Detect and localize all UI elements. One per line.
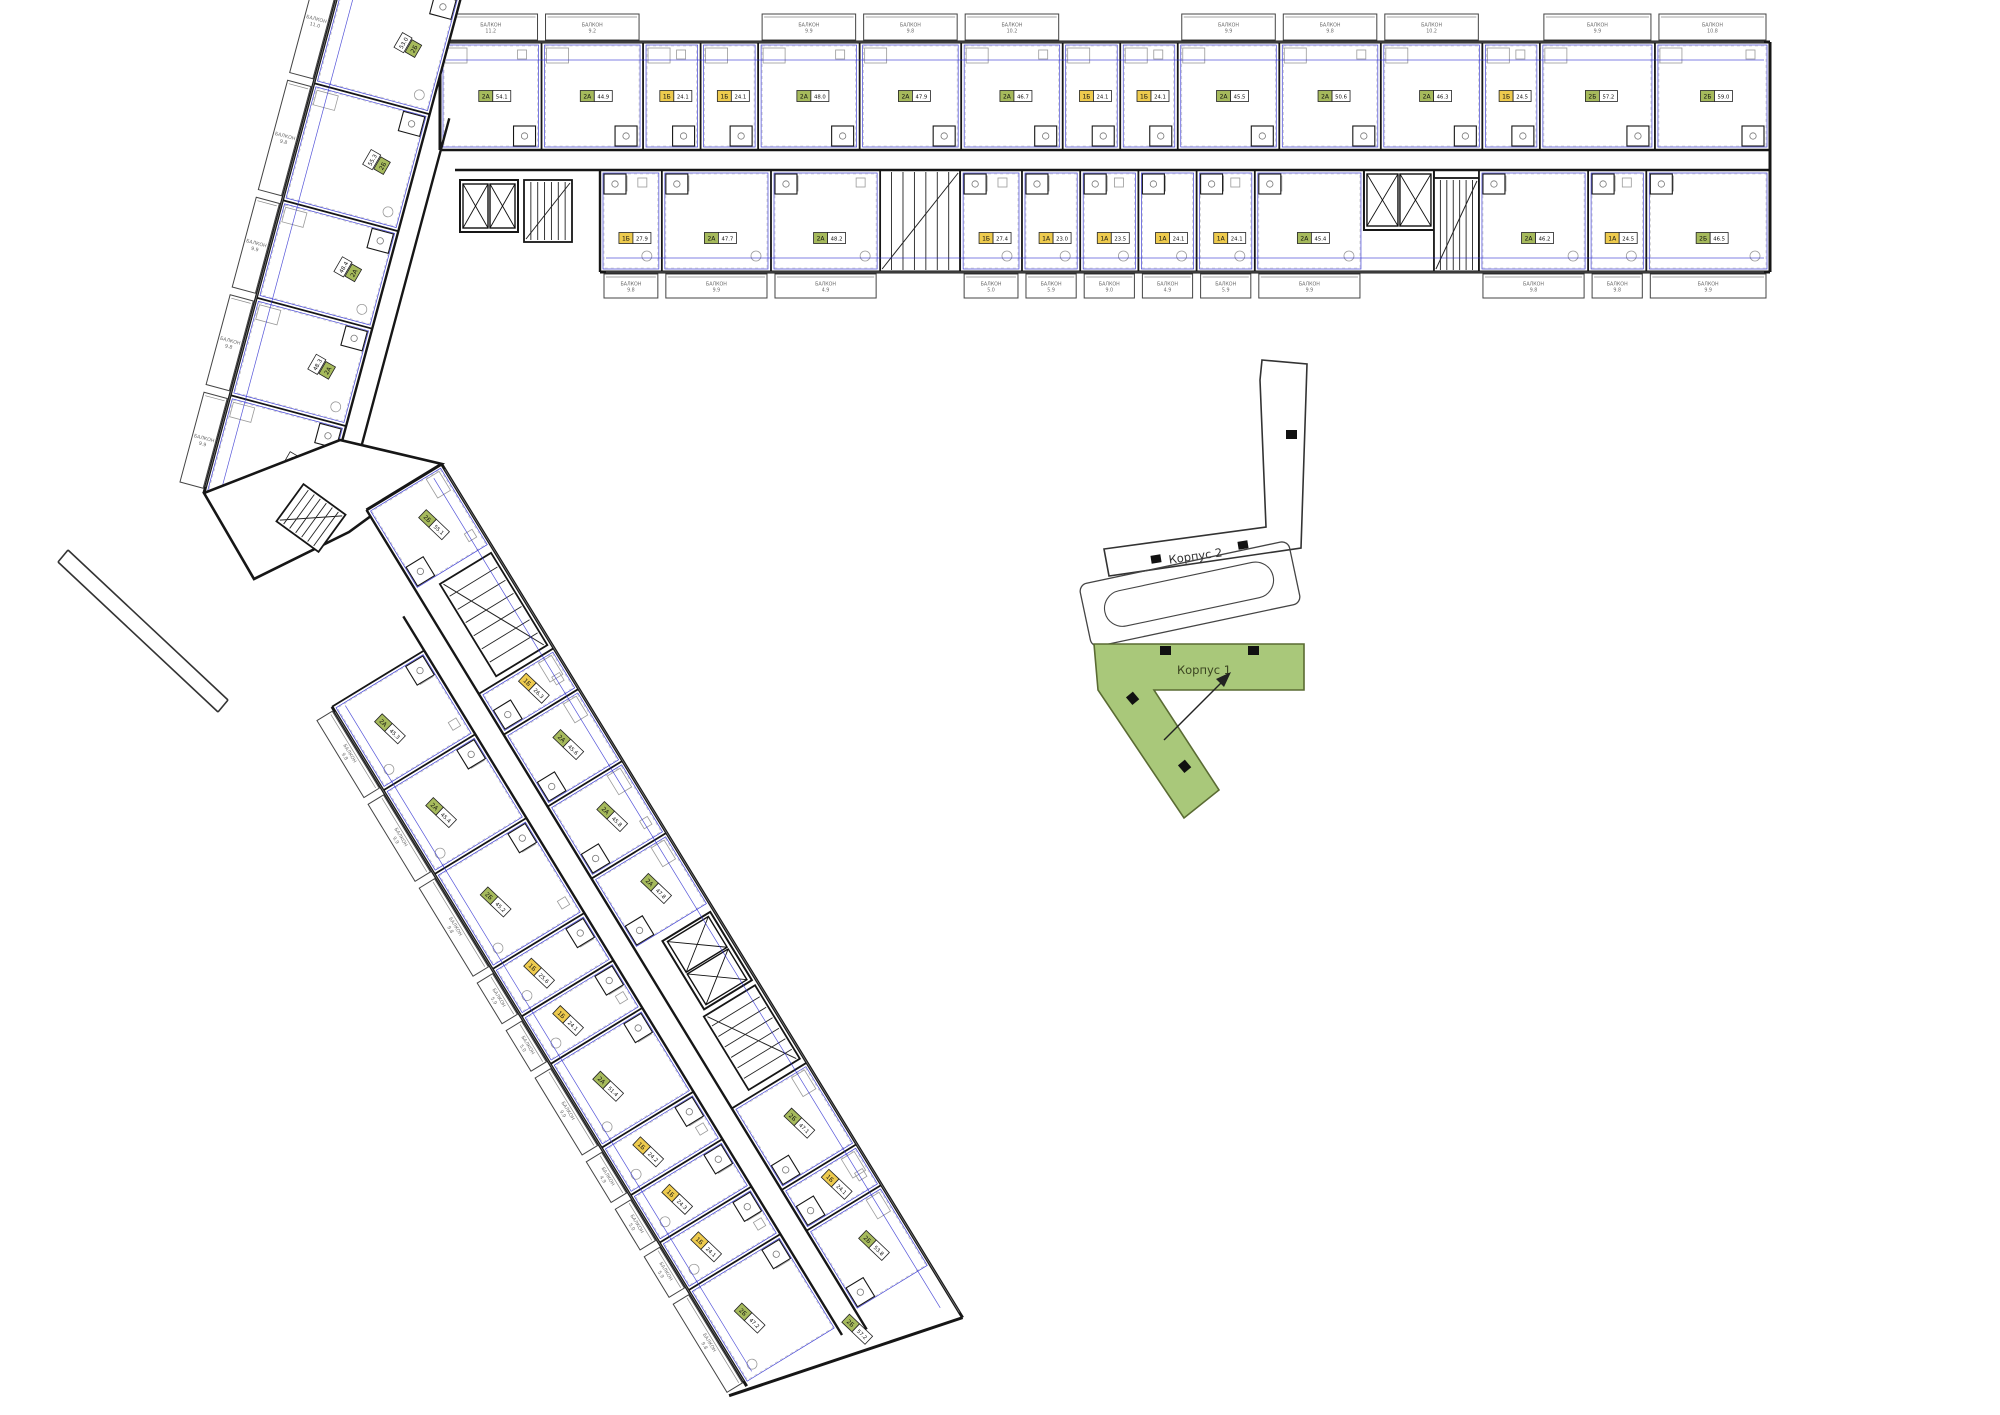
bathroom [1084,174,1106,194]
unit-type-text: 2А [1300,235,1309,242]
balcony-area: 9.8 [1326,29,1334,35]
bathroom [1259,174,1281,194]
balcony-label: БАЛКОН [1099,282,1120,288]
balcony-area: 5.9 [1047,288,1055,294]
keyplan-korpus2-shape[interactable] [1104,360,1307,576]
keyplan-korpus1-label: Корпус 1 [1177,663,1231,677]
apartment-unit-2А[interactable]: 2А47.9БАЛКОН9.8 [860,14,962,150]
unit-badge: 2А47.7 [704,233,736,244]
apartment-unit-2А[interactable]: 2А48.0БАЛКОН9.9 [758,14,860,150]
balcony-area: 9.8 [1613,288,1621,294]
bathroom [775,174,797,194]
unit-area-text: 24.1 [1154,94,1166,100]
balcony-area: 10.2 [1007,29,1018,35]
balcony-area: 9.0 [1105,288,1113,294]
apartment-unit-2А[interactable]: 2А44.9БАЛКОН9.2 [542,14,644,150]
apartment-unit-2А[interactable]: 2А46.3БАЛКОН10.2 [1381,14,1483,150]
bathroom [1650,174,1672,194]
balcony-label: БАЛКОН [1587,23,1608,29]
apartment-unit-1А[interactable]: 1А24.1БАЛКОН4.9 [1138,170,1196,298]
apartment-unit-2А[interactable]: 2А50.6БАЛКОН9.8 [1279,14,1381,150]
balcony-label: БАЛКОН [900,23,921,29]
bathroom [964,174,986,194]
apartment-unit-1А[interactable]: 1А24.5БАЛКОН9.8 [1588,170,1646,298]
unit-area-text: 24.1 [1173,236,1185,242]
apartment-unit-1Б[interactable]: 1Б24.1 [643,42,701,150]
bathroom [1742,126,1764,146]
unit-type-text: 2А [817,235,826,242]
unit-area-text: 24.1 [1097,94,1109,100]
unit-type-text: 1А [1217,235,1226,242]
apartment-unit-2А[interactable]: 2А46.2БАЛКОН9.8 [1479,170,1588,298]
unit-badge: 2А47.9 [898,91,930,102]
bathroom [673,126,695,146]
apartment-unit-1Б[interactable]: 1Б24.1 [701,42,759,150]
apartment-unit-2Б[interactable]: 2Б46.5БАЛКОН9.9 [1646,170,1770,298]
stair-core [524,180,572,242]
unit-badge: 2А54.1 [479,91,511,102]
bathroom [604,174,626,194]
balcony-area: 9.2 [588,29,596,35]
bathroom [1026,174,1048,194]
bathroom [1454,126,1476,146]
unit-badge: 1Б24.1 [717,91,749,102]
balcony-label: БАЛКОН [480,23,501,29]
apartment-unit-2А[interactable]: 2А47.7БАЛКОН9.9 [662,170,771,298]
balcony-area: 9.9 [1225,29,1233,35]
unit-type-text: 2Б [1588,93,1596,100]
bathroom [1353,126,1375,146]
unit-badge: 2А45.5 [1217,91,1249,102]
balcony-area: 5.0 [987,288,995,294]
floor-plan-page: { "labels": { "korpus1": "Корпус 1", "ko… [0,0,2000,1415]
bathroom [1201,174,1223,194]
elevator-core [1364,170,1434,230]
stair-core [880,170,960,272]
unit-type-text: 1А [1608,235,1617,242]
unit-area-text: 46.5 [1713,236,1725,242]
unit-badge: 2А45.4 [1297,233,1329,244]
balcony-label: БАЛКОН [1001,23,1022,29]
balcony-area: 10.8 [1707,29,1718,35]
unit-area-text: 23.5 [1114,236,1126,242]
unit-type-text: 1А [1042,235,1051,242]
unit-type-text: 2А [707,235,716,242]
balcony-area: 10.2 [1426,29,1437,35]
apartment-unit-1Б[interactable]: 1Б24.1 [1120,42,1178,150]
unit-badge: 1Б27.4 [979,233,1011,244]
unit-type-text: 1Б [1082,93,1090,100]
unit-type-text: 1Б [622,235,630,242]
apartment-unit-1А[interactable]: 1А24.1БАЛКОН5.9 [1197,170,1255,298]
unit-area-text: 24.5 [1622,236,1634,242]
unit-badge: 2Б59.0 [1700,91,1732,102]
balcony-label: БАЛКОН [620,282,641,288]
unit-area-text: 46.7 [1017,94,1029,100]
unit-badge: 2А48.2 [814,233,846,244]
balcony-area: 9.8 [907,29,915,35]
unit-area-text: 57.2 [1603,94,1615,100]
unit-type-text: 1Б [1502,93,1510,100]
unit-type-text: 1А [1159,235,1168,242]
apartment-unit-1А[interactable]: 1А23.0БАЛКОН5.9 [1022,170,1080,298]
balcony-label: БАЛКОН [582,23,603,29]
lower-right-wing: 2Б55.11Б26.32А45.62А45.82А47.82Б47.11Б24… [237,464,963,1415]
balcony-label: БАЛКОН [1299,282,1320,288]
apartment-unit-2А[interactable]: 2А46.7БАЛКОН10.2 [961,14,1063,150]
unit-area-text: 24.1 [677,94,689,100]
apartment-unit-1Б[interactable]: 1Б24.5 [1482,42,1540,150]
balcony-label: БАЛКОН [1523,282,1544,288]
unit-badge: 2А46.3 [1420,91,1452,102]
balcony-label: БАЛКОН [1702,23,1723,29]
balcony-label: БАЛКОН [706,282,727,288]
balcony-label: БАЛКОН [1041,282,1062,288]
window-band [335,712,743,1381]
unit-badge: 2А48.0 [797,91,829,102]
unit-type-text: 2А [1423,93,1432,100]
unit-badge: 2А44.9 [580,91,612,102]
balcony-area: 9.9 [1704,288,1712,294]
balcony-label: БАЛКОН [1607,282,1628,288]
unit-type-text: 1Б [982,235,990,242]
apartment-unit-2А[interactable]: 2А45.5БАЛКОН9.9 [1178,14,1280,150]
bathroom [666,174,688,194]
apartment-unit-1Б[interactable]: 1Б24.1 [1063,42,1121,150]
bathroom [1142,174,1164,194]
unit-area-text: 47.7 [722,236,734,242]
balcony-label: БАЛКОН [815,282,836,288]
unit-area-text: 47.9 [916,94,928,100]
balcony-area: 9.8 [1530,288,1538,294]
unit-badge: 1Б24.1 [660,91,692,102]
apartment-unit-1А[interactable]: 1А23.5БАЛКОН9.0 [1080,170,1138,298]
unit-area-text: 27.9 [636,236,648,242]
unit-area-text: 23.0 [1056,236,1068,242]
unit-area-text: 50.6 [1335,94,1347,100]
balcony-label: БАЛКОН [1215,282,1236,288]
bathroom [1035,126,1057,146]
balcony-area: 9.9 [805,29,813,35]
balcony-label: БАЛКОН [1421,23,1442,29]
bathroom [730,126,752,146]
unit-type-text: 2А [1220,93,1229,100]
unit-area-text: 46.2 [1539,236,1551,242]
unit-badge: 1А24.1 [1156,233,1188,244]
unit-type-text: 2А [1321,93,1330,100]
unit-type-text: 2А [583,93,592,100]
apartment-unit-1Б[interactable]: 1Б27.9БАЛКОН9.8 [600,170,662,298]
balcony-area: 9.9 [1306,288,1314,294]
unit-area-text: 59.0 [1718,94,1730,100]
unit-type-text: 1Б [1140,93,1148,100]
bathroom [832,126,854,146]
bathroom [1251,126,1273,146]
apartment-unit-1Б[interactable]: 1Б27.4БАЛКОН5.0 [960,170,1022,298]
unit-area-text: 44.9 [597,94,609,100]
bathroom [514,126,536,146]
unit-type-text: 2А [901,93,910,100]
apartment-unit-2А[interactable]: 2А48.2БАЛКОН4.9 [771,170,880,298]
unit-area-text: 48.0 [814,94,826,100]
site-canopy-lines [58,550,228,712]
bathroom [1627,126,1649,146]
apartment-unit-2А[interactable]: 2А45.4БАЛКОН9.9 [1255,170,1364,298]
balcony-area: 4.9 [822,288,830,294]
bathroom [1092,126,1114,146]
apartment-unit-2Б[interactable]: 2Б59.0БАЛКОН10.8 [1655,14,1770,150]
unit-area-text: 27.4 [996,236,1008,242]
unit-badge: 1Б24.1 [1079,91,1111,102]
balcony-label: БАЛКОН [798,23,819,29]
unit-type-text: 2А [1525,235,1534,242]
apartment-unit-2Б[interactable]: 2Б57.2БАЛКОН9.9 [1540,14,1655,150]
unit-badge: 1Б27.9 [619,233,651,244]
bathroom [1512,126,1534,146]
unit-area-text: 46.3 [1437,94,1449,100]
balcony-area: 11.2 [485,29,496,35]
bathroom [1150,126,1172,146]
unit-badge: 1А23.0 [1039,233,1071,244]
balcony-label: БАЛКОН [1320,23,1341,29]
unit-area-text: 48.2 [831,236,843,242]
unit-badge: 1А23.5 [1097,233,1129,244]
unit-area-text: 24.1 [734,94,746,100]
unit-badge: 1Б24.5 [1499,91,1531,102]
top-wing: 2А54.1БАЛКОН11.22А44.9БАЛКОН9.21Б24.11Б2… [440,14,1770,298]
unit-area-text: 45.4 [1314,236,1326,242]
unit-type-text: 1Б [663,93,671,100]
unit-type-text: 1Б [720,93,728,100]
balcony-area: 4.9 [1164,288,1172,294]
unit-type-text: 1А [1100,235,1109,242]
unit-type-text: 2А [482,93,491,100]
unit-area-text: 45.5 [1234,94,1246,100]
balcony-label: БАЛКОН [1218,23,1239,29]
unit-badge: 1А24.5 [1605,233,1637,244]
balcony-area: 9.9 [1594,29,1602,35]
balcony-label: БАЛКОН [981,282,1002,288]
unit-type-text: 2А [800,93,809,100]
balcony-area: 5.9 [1222,288,1230,294]
balcony-area: 9.8 [627,288,635,294]
unit-type-text: 2А [1003,93,1012,100]
bathroom [1483,174,1505,194]
balcony-label: БАЛКОН [1157,282,1178,288]
bathroom [615,126,637,146]
apartment-unit-2А[interactable]: 2А54.1БАЛКОН11.2 [440,14,542,150]
unit-type-text: 2Б [1703,93,1711,100]
unit-badge: 2Б46.5 [1696,233,1728,244]
unit-area-text: 54.1 [496,94,508,100]
unit-type-text: 2Б [1699,235,1707,242]
unit-badge: 1А24.1 [1214,233,1246,244]
balcony-label: БАЛКОН [1698,282,1719,288]
unit-badge: 2А50.6 [1318,91,1350,102]
balcony-area: 9.9 [713,288,721,294]
unit-area-text: 24.5 [1516,94,1528,100]
unit-badge: 2А46.7 [1000,91,1032,102]
unit-badge: 2Б57.2 [1585,91,1617,102]
unit-area-text: 24.1 [1231,236,1243,242]
elevator-core [460,180,518,232]
bathroom [1592,174,1614,194]
bathroom [933,126,955,146]
unit-badge: 1Б24.1 [1137,91,1169,102]
key-plan: Корпус 2 Корпус 1 [1079,360,1307,818]
floor-plan: Корпус 2 Корпус 1 2А54.1БАЛКОН11.22А44.9… [0,0,2000,1415]
unit-badge: 2А46.2 [1522,233,1554,244]
corridor-wall [403,616,842,1335]
